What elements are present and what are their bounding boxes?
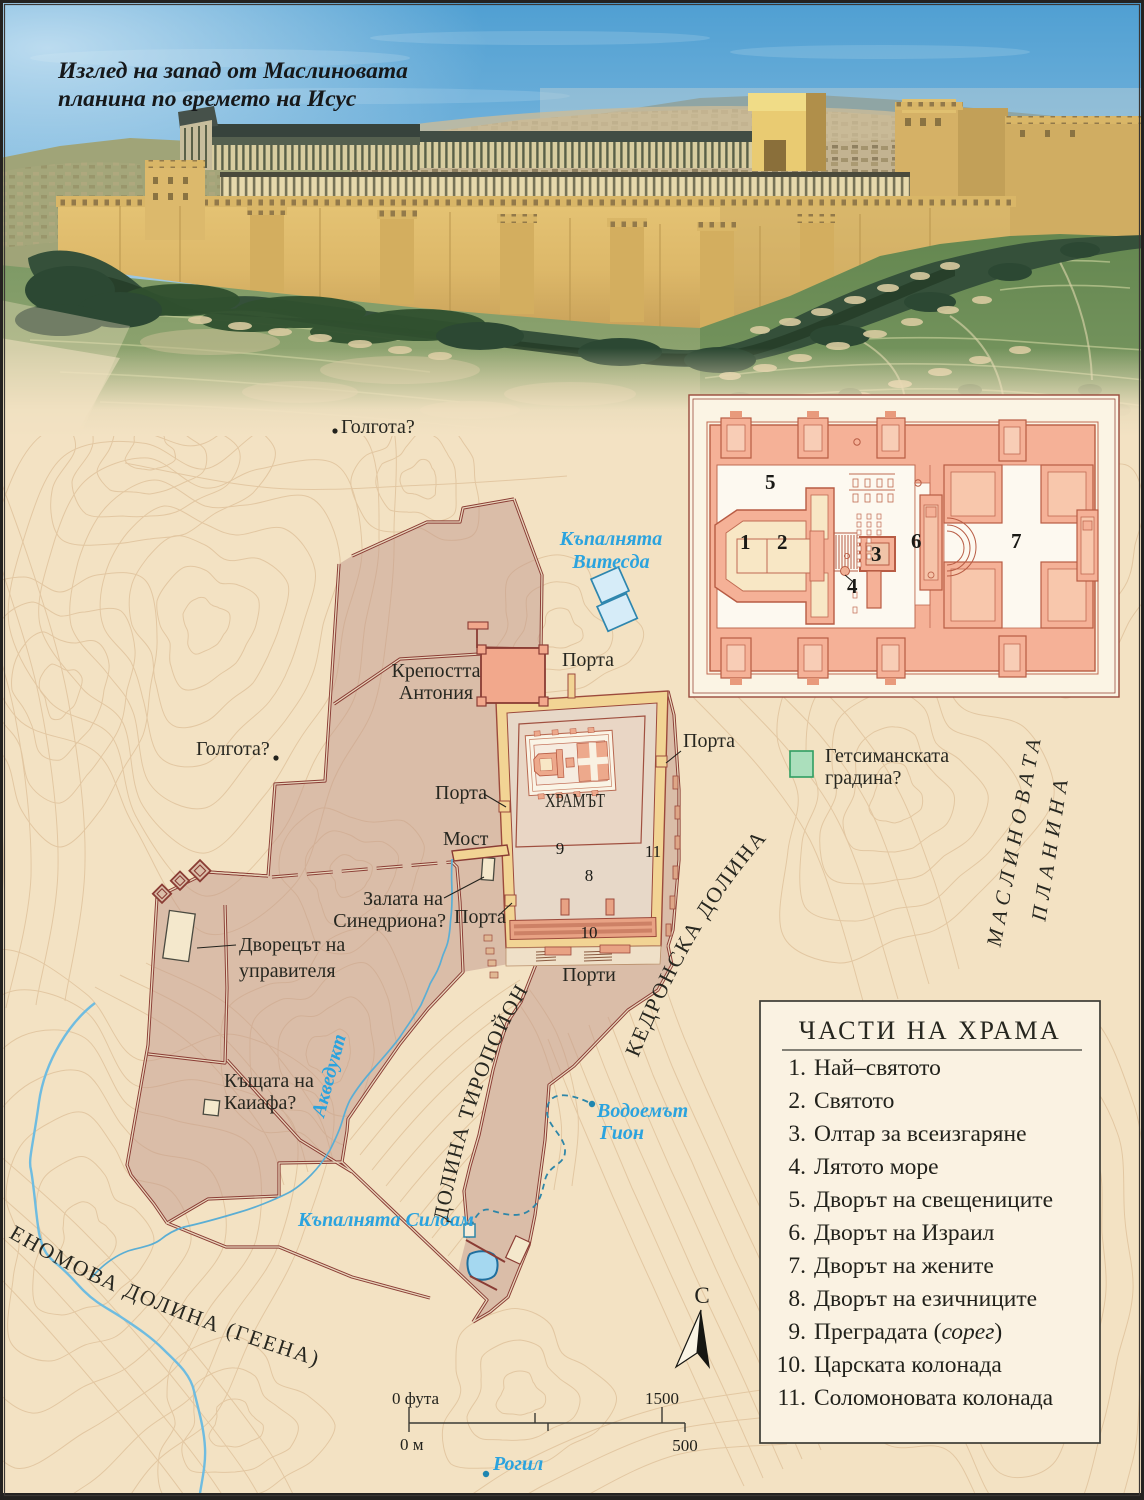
svg-text:Рогил: Рогил: [492, 1453, 543, 1475]
svg-text:Олтар за всеизгаряне: Олтар за всеизгаряне: [814, 1121, 1027, 1147]
svg-text:0 фута: 0 фута: [392, 1389, 439, 1408]
svg-text:2: 2: [777, 530, 788, 554]
svg-text:Голгота?: Голгота?: [341, 416, 415, 438]
svg-text:Крепостта: Крепостта: [392, 660, 481, 682]
svg-text:6: 6: [911, 529, 922, 553]
svg-text:Витесда: Витесда: [571, 551, 649, 573]
svg-text:Каиафа?: Каиафа?: [224, 1092, 296, 1114]
svg-text:Святото: Святото: [814, 1088, 894, 1114]
svg-text:Дворът на езичниците: Дворът на езичниците: [814, 1286, 1037, 1312]
svg-text:Най–святото: Най–святото: [814, 1055, 941, 1081]
svg-text:Антония: Антония: [399, 682, 473, 704]
svg-text:5.: 5.: [788, 1187, 806, 1213]
svg-text:3: 3: [871, 542, 882, 566]
svg-text:Преградата (сорег): Преградата (сорег): [814, 1319, 1002, 1345]
svg-text:Дворът на жените: Дворът на жените: [814, 1253, 994, 1279]
svg-text:Гион: Гион: [599, 1122, 644, 1144]
svg-text:Порта: Порта: [435, 782, 487, 804]
svg-text:Мост: Мост: [443, 828, 489, 850]
svg-text:Къщата на: Къщата на: [224, 1070, 314, 1092]
svg-text:управителя: управителя: [239, 960, 336, 982]
svg-text:9.: 9.: [788, 1319, 806, 1345]
svg-text:1: 1: [740, 530, 751, 554]
svg-text:Царската колонада: Царската колонада: [814, 1352, 1002, 1378]
svg-text:Дворът на свещениците: Дворът на свещениците: [814, 1187, 1053, 1213]
svg-text:10.: 10.: [777, 1352, 806, 1378]
svg-text:Синедриона?: Синедриона?: [333, 910, 446, 932]
svg-text:6.: 6.: [788, 1220, 806, 1246]
svg-text:Порта: Порта: [454, 906, 506, 928]
svg-text:11.: 11.: [777, 1385, 806, 1411]
svg-text:Гетсиманската: Гетсиманската: [825, 745, 949, 767]
svg-text:Изглед на запад от Маслиновата: Изглед на запад от Маслиновата: [57, 58, 408, 84]
svg-text:0 м: 0 м: [400, 1435, 424, 1454]
svg-text:градина?: градина?: [825, 767, 902, 789]
svg-text:планина по времето на Исус: планина по времето на Исус: [58, 86, 357, 112]
svg-text:7: 7: [1011, 529, 1022, 553]
svg-text:Дворецът на: Дворецът на: [239, 934, 345, 956]
svg-text:8.: 8.: [788, 1286, 806, 1312]
svg-text:Залата на: Залата на: [363, 888, 443, 910]
svg-text:500: 500: [672, 1436, 698, 1455]
svg-text:Порти: Порти: [562, 964, 616, 986]
svg-text:С: С: [694, 1283, 709, 1308]
svg-text:Дворът на Израил: Дворът на Израил: [814, 1220, 995, 1246]
svg-text:1500: 1500: [645, 1389, 679, 1408]
svg-text:Къпалнята: Къпалнята: [559, 528, 662, 550]
svg-text:ХРАМЪТ: ХРАМЪТ: [545, 790, 605, 812]
svg-text:Соломоновата колонада: Соломоновата колонада: [814, 1385, 1054, 1411]
svg-text:3.: 3.: [788, 1121, 806, 1147]
svg-text:ЧАСТИ НА ХРАМА: ЧАСТИ НА ХРАМА: [799, 1016, 1062, 1045]
svg-text:Порта: Порта: [562, 649, 614, 671]
svg-text:4.: 4.: [788, 1154, 806, 1180]
svg-text:1.: 1.: [788, 1055, 806, 1081]
svg-text:8: 8: [585, 866, 594, 885]
svg-text:11: 11: [645, 842, 661, 861]
svg-text:Лятото море: Лятото море: [814, 1154, 939, 1180]
svg-text:Голгота?: Голгота?: [196, 738, 270, 760]
svg-text:5: 5: [765, 470, 776, 494]
svg-text:7.: 7.: [788, 1253, 806, 1279]
svg-text:Порта: Порта: [683, 730, 735, 752]
svg-text:9: 9: [556, 839, 565, 858]
svg-text:2.: 2.: [788, 1088, 806, 1114]
svg-text:10: 10: [581, 923, 598, 942]
svg-text:Водоемът: Водоемът: [596, 1100, 688, 1122]
